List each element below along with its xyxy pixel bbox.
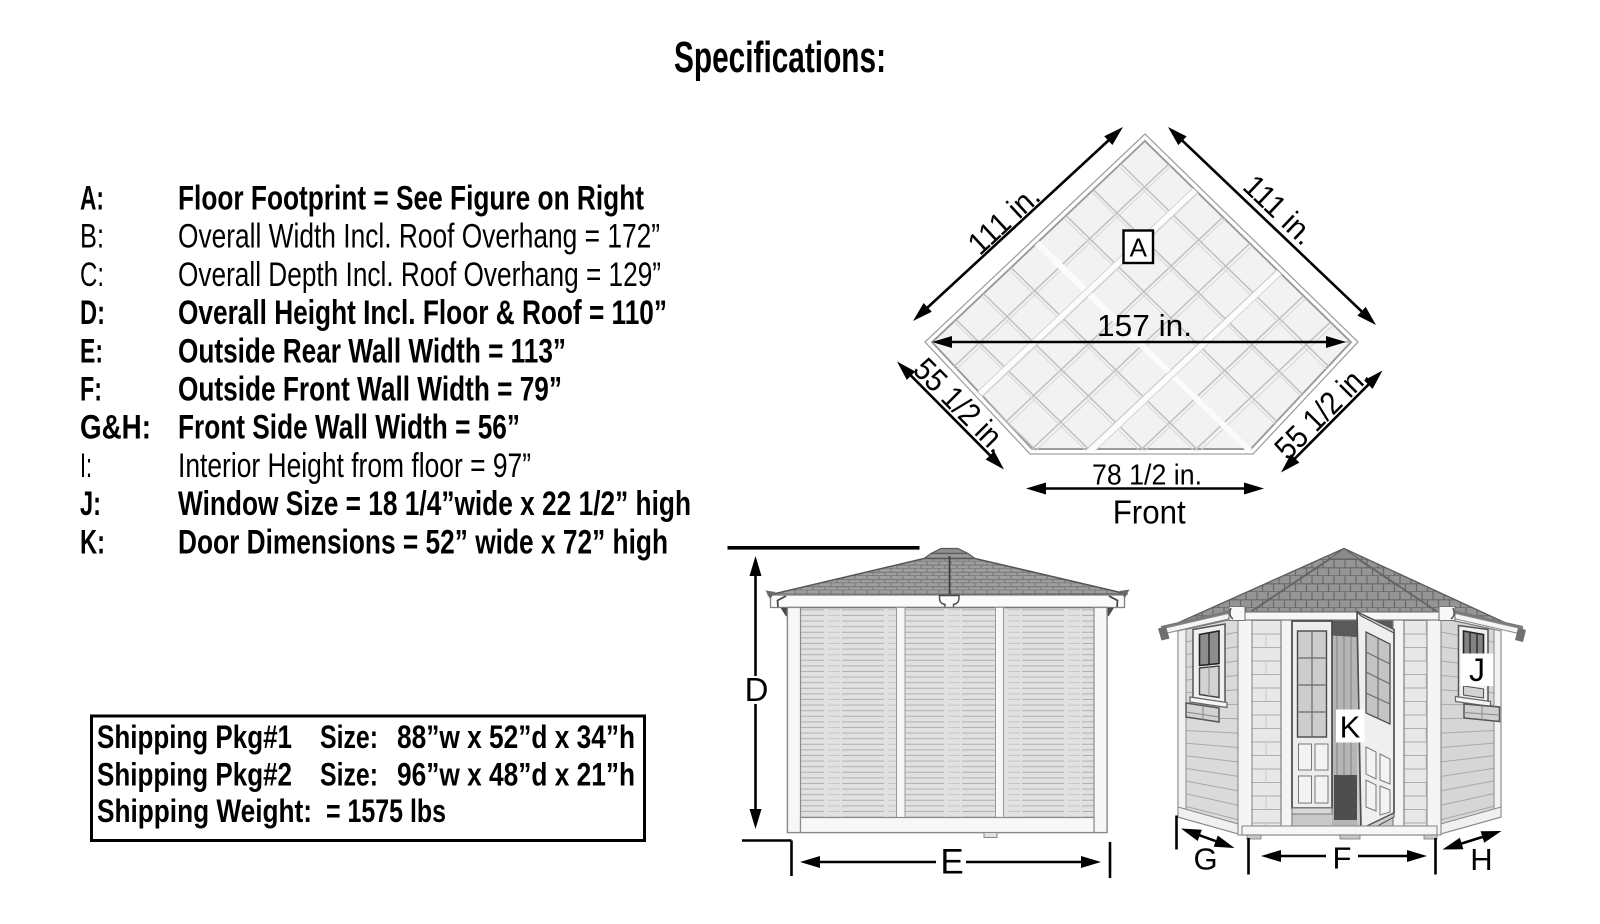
svg-text:Floor Footprint = See Figure o: Floor Footprint = See Figure on Right — [178, 180, 644, 218]
svg-text:Size:: Size: — [320, 719, 378, 755]
svg-text:C:: C: — [80, 256, 104, 294]
svg-text:K:: K: — [80, 523, 105, 561]
svg-text:Front Side Wall Width = 56”: Front Side Wall Width = 56” — [178, 409, 520, 447]
svg-text:F:: F: — [80, 371, 102, 409]
svg-text:96”w x 48”d x 21”h: 96”w x 48”d x 21”h — [397, 757, 635, 793]
svg-text:Outside Front Wall Width = 79”: Outside Front Wall Width = 79” — [178, 371, 562, 409]
svg-text:Shipping Pkg#1: Shipping Pkg#1 — [97, 719, 292, 755]
svg-text:A:: A: — [80, 180, 104, 218]
svg-text:F: F — [1333, 841, 1352, 876]
svg-text:Specifications:: Specifications: — [674, 33, 886, 82]
svg-text:D:: D: — [80, 294, 105, 332]
svg-text:E:: E: — [80, 332, 103, 370]
svg-text:Front: Front — [1113, 494, 1186, 531]
svg-text:157 in.: 157 in. — [1097, 308, 1192, 343]
svg-text:Shipping Weight:: Shipping Weight: — [97, 793, 312, 829]
svg-text:Overall Width Incl. Roof Overh: Overall Width Incl. Roof Overhang = 172” — [178, 218, 660, 256]
svg-text:Outside Rear Wall Width = 113”: Outside Rear Wall Width = 113” — [178, 332, 566, 370]
svg-text:Window Size = 18 1/4”wide x 22: Window Size = 18 1/4”wide x 22 1/2” high — [178, 485, 691, 523]
svg-text:78 1/2 in.: 78 1/2 in. — [1092, 460, 1202, 492]
svg-text:Overall Depth Incl. Roof Overh: Overall Depth Incl. Roof Overhang = 129” — [178, 256, 661, 294]
svg-text:G: G — [1193, 842, 1217, 877]
svg-text:E: E — [940, 843, 963, 882]
svg-text:Overall Height Incl. Floor & R: Overall Height Incl. Floor & Roof = 110” — [178, 294, 667, 332]
svg-text:I:: I: — [80, 447, 92, 485]
svg-text:J: J — [1469, 652, 1485, 688]
svg-text:A: A — [1130, 233, 1148, 263]
svg-text:Door Dimensions = 52” wide x 7: Door Dimensions = 52” wide x 72” high — [178, 523, 668, 561]
svg-text:D: D — [745, 671, 769, 708]
svg-text:Shipping Pkg#2: Shipping Pkg#2 — [97, 757, 292, 793]
svg-text:Interior Height from floor = 9: Interior Height from floor = 97” — [178, 447, 531, 485]
svg-text:J:: J: — [80, 485, 101, 523]
svg-text:= 1575 lbs: = 1575 lbs — [326, 793, 446, 829]
svg-text:B:: B: — [80, 218, 104, 256]
svg-text:G&H:: G&H: — [80, 409, 151, 447]
svg-text:K: K — [1340, 710, 1361, 745]
svg-text:Size:: Size: — [320, 757, 378, 793]
svg-text:H: H — [1470, 842, 1492, 877]
svg-text:88”w x 52”d x 34”h: 88”w x 52”d x 34”h — [397, 719, 635, 755]
